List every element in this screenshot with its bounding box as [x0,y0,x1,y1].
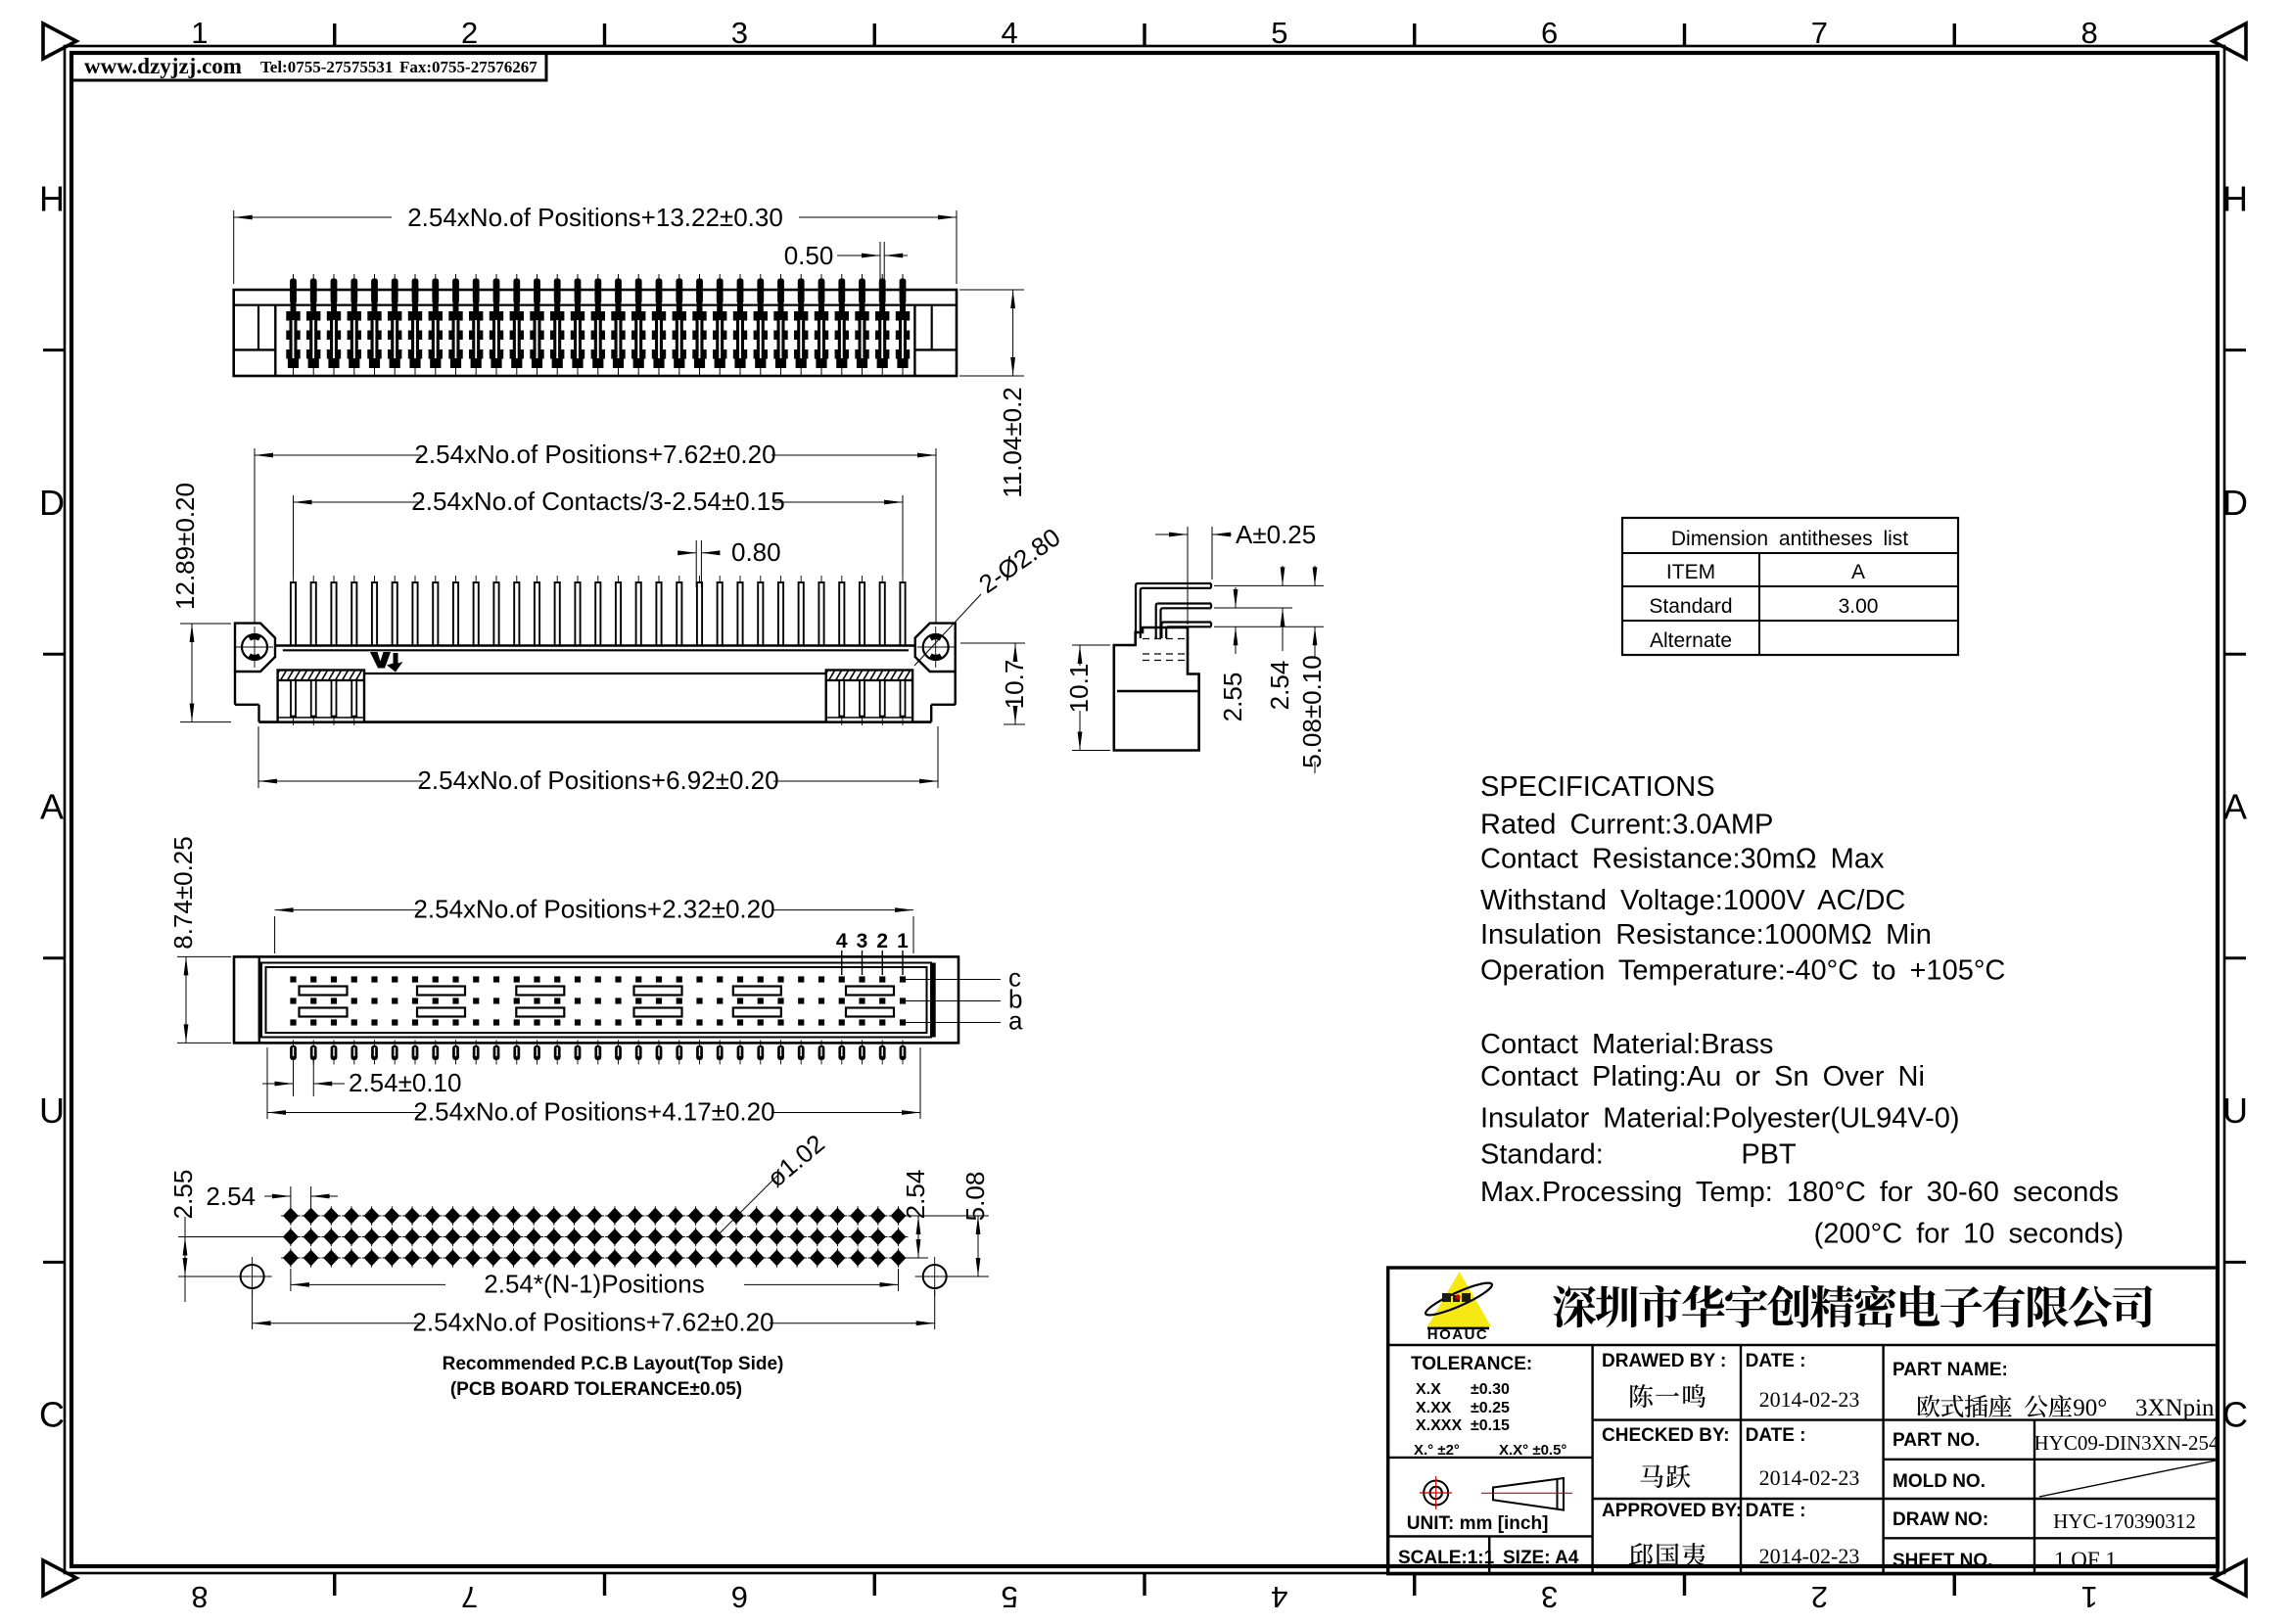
svg-text:PART NAME:: PART NAME: [1893,1360,2008,1380]
svg-text:(PCB BOARD TOLERANCE±0.05): (PCB BOARD TOLERANCE±0.05) [450,1379,742,1400]
svg-text:3: 3 [857,930,868,952]
svg-text:2.54xNo.of Positions+4.17±0.2: 2.54xNo.of Positions+4.17±0.20 [413,1097,774,1127]
svg-text:A±0.25: A±0.25 [1236,520,1316,549]
svg-text:8: 8 [191,1580,208,1614]
svg-text:Fax:0755-27576267: Fax:0755-27576267 [399,58,537,76]
svg-text:Contact Resistance:30mΩ Max: Contact Resistance:30mΩ Max [1480,844,1885,875]
svg-text:4: 4 [1271,1580,1287,1614]
svg-text:2.54xNo.of Positions+13.22±0.: 2.54xNo.of Positions+13.22±0.30 [407,203,783,232]
svg-text:H: H [2222,178,2248,218]
svg-text:2.54xNo.of Positions+7.62±0.2: 2.54xNo.of Positions+7.62±0.20 [414,440,775,469]
svg-text:Insulator Material:Polyester(: Insulator Material:Polyester(UL94V-0) [1480,1103,1960,1135]
svg-text:8.74±0.25: 8.74±0.25 [168,836,198,949]
svg-text:1 OF 1: 1 OF 1 [2054,1548,2117,1572]
svg-text:Insulation Resistance:1000MΩ: Insulation Resistance:1000MΩ Min [1480,919,1932,951]
svg-text:2: 2 [461,16,478,50]
svg-text:HOAUC: HOAUC [1427,1326,1489,1343]
svg-text:A: A [1851,561,1865,583]
svg-text:2: 2 [876,930,888,952]
svg-text:U: U [2222,1090,2248,1131]
svg-text:SIZE: A4: SIZE: A4 [1503,1548,1579,1568]
svg-text:Standard: Standard [1649,595,1732,618]
svg-text:3XNpin: 3XNpin [2135,1395,2215,1421]
svg-text:SPECIFICATIONS: SPECIFICATIONS [1480,771,1715,803]
svg-text:5: 5 [1271,16,1287,50]
svg-text:X.X° ±0.5°: X.X° ±0.5° [1499,1442,1566,1459]
svg-text:Rated Current:3.0AMP: Rated Current:3.0AMP [1480,810,1773,841]
svg-text:10.1: 10.1 [1064,664,1094,714]
svg-text:DATE :: DATE : [1746,1501,1806,1521]
svg-text:X.XX: X.XX [1416,1400,1452,1416]
svg-text:3: 3 [1541,1580,1558,1614]
svg-text:Withstand Voltage:1000V AC/D: Withstand Voltage:1000V AC/DC [1480,885,1905,916]
svg-text:2014-02-23: 2014-02-23 [1759,1544,1860,1568]
svg-text:TOLERANCE:: TOLERANCE: [1411,1354,1532,1374]
svg-text:2.54*(N-1)Positions: 2.54*(N-1)Positions [484,1269,704,1298]
svg-text:±0.30: ±0.30 [1471,1381,1510,1398]
svg-text:HYC-170390312: HYC-170390312 [2053,1509,2196,1533]
svg-text:X.XXX: X.XXX [1416,1417,1462,1434]
svg-text:C: C [39,1395,65,1435]
svg-text:2.54: 2.54 [206,1182,256,1211]
svg-text:3.00: 3.00 [1839,595,1879,618]
svg-text:1: 1 [2081,1580,2098,1614]
svg-text:11.04±0.2: 11.04±0.2 [998,387,1027,498]
svg-text:CHECKED BY:: CHECKED BY: [1602,1425,1730,1446]
svg-text:DRAWED BY :: DRAWED BY : [1602,1351,1726,1371]
svg-text:7: 7 [1811,16,1828,50]
svg-text:Contact Plating:Au or Sn O: Contact Plating:Au or Sn Over Ni [1480,1061,1925,1092]
svg-text:1: 1 [191,16,208,50]
svg-text:X.° ±2°: X.° ±2° [1414,1442,1460,1459]
svg-text:Contact Material:Brass: Contact Material:Brass [1480,1029,1773,1060]
svg-text:Max.Processing Temp: 180°C: Max.Processing Temp: 180°C for 30-60 sec… [1480,1177,2119,1208]
svg-text:HYC09-DIN3XN-254: HYC09-DIN3XN-254 [2034,1431,2220,1455]
svg-text:12.89±0.20: 12.89±0.20 [170,483,200,610]
svg-text:Alternate: Alternate [1650,629,1732,652]
svg-text:PART NO.: PART NO. [1893,1430,1980,1451]
svg-text:a: a [1008,1006,1023,1036]
svg-text:7: 7 [461,1580,478,1614]
svg-text:0.80: 0.80 [731,537,781,567]
svg-text:90°: 90° [2073,1395,2107,1421]
svg-text:DATE :: DATE : [1746,1351,1806,1371]
svg-text:A: A [40,787,64,827]
svg-text:2.55: 2.55 [1218,673,1247,722]
svg-text:H: H [39,178,65,218]
svg-text:2.54xNo.of Positions+7.62±0.2: 2.54xNo.of Positions+7.62±0.20 [412,1308,773,1337]
svg-text:4: 4 [836,930,848,952]
svg-text:2014-02-23: 2014-02-23 [1759,1387,1860,1412]
svg-text:2: 2 [1811,1580,1828,1614]
svg-text:DRAW NO:: DRAW NO: [1893,1509,1988,1530]
svg-text:SCALE:1:1: SCALE:1:1 [1398,1548,1495,1568]
svg-text:5.08: 5.08 [960,1172,990,1222]
svg-text:(200°C for 10 seconds): (200°C for 10 seconds) [1814,1219,2125,1250]
svg-text:8: 8 [2081,16,2098,50]
svg-text:2.54xNo.of Positions+2.32±0.2: 2.54xNo.of Positions+2.32±0.20 [413,895,774,924]
svg-text:Operation Temperature:-40°C: Operation Temperature:-40°C to +105°C [1480,955,2005,987]
svg-text:X.X: X.X [1416,1381,1441,1398]
svg-text:0.50: 0.50 [784,241,834,270]
svg-text:Standard: PBT: Standard: PBT [1480,1138,1797,1170]
svg-text:4: 4 [1002,16,1018,50]
svg-text:Dimension antitheses list: Dimension antitheses list [1671,528,1908,550]
svg-text:U: U [39,1090,65,1131]
svg-text:Tel:0755-27575531: Tel:0755-27575531 [260,58,393,76]
svg-text:±0.15: ±0.15 [1471,1417,1510,1434]
svg-text:6: 6 [731,1580,748,1614]
svg-text:UNIT: mm [inch]: UNIT: mm [inch] [1407,1513,1549,1534]
svg-text:5: 5 [1002,1580,1018,1614]
svg-text:ITEM: ITEM [1666,561,1715,583]
svg-text:5.08±0.10: 5.08±0.10 [1297,655,1327,767]
svg-text:C: C [2222,1395,2248,1435]
svg-text:10.7: 10.7 [1000,660,1029,710]
svg-text:2.54±0.10: 2.54±0.10 [349,1068,461,1097]
svg-text:SHEET NO.: SHEET NO. [1893,1551,1992,1571]
svg-text:D: D [39,483,65,523]
svg-text:6: 6 [1541,16,1558,50]
svg-text:A: A [2223,787,2247,827]
svg-text:±0.25: ±0.25 [1471,1400,1510,1416]
svg-text:MOLD NO.: MOLD NO. [1893,1471,1986,1492]
svg-text:1: 1 [897,930,909,952]
svg-text:2.54: 2.54 [901,1170,930,1220]
svg-text:3: 3 [731,16,748,50]
svg-text:2.54xNo.of Contacts/3-2.54±0.: 2.54xNo.of Contacts/3-2.54±0.15 [411,487,784,516]
svg-text:D: D [2222,483,2248,523]
svg-text:DATE :: DATE : [1746,1425,1806,1446]
svg-text:www.dzyjzj.com: www.dzyjzj.com [84,54,242,78]
svg-text:APPROVED BY:: APPROVED BY: [1602,1501,1742,1521]
svg-text:Recommended P.C.B Layout(Top: Recommended P.C.B Layout(Top Side) [443,1354,784,1374]
svg-text:2014-02-23: 2014-02-23 [1759,1465,1860,1490]
svg-text:2.54xNo.of Positions+6.92±0.2: 2.54xNo.of Positions+6.92±0.20 [417,766,778,795]
svg-text:2.55: 2.55 [168,1170,198,1220]
svg-text:2.54: 2.54 [1265,661,1294,711]
